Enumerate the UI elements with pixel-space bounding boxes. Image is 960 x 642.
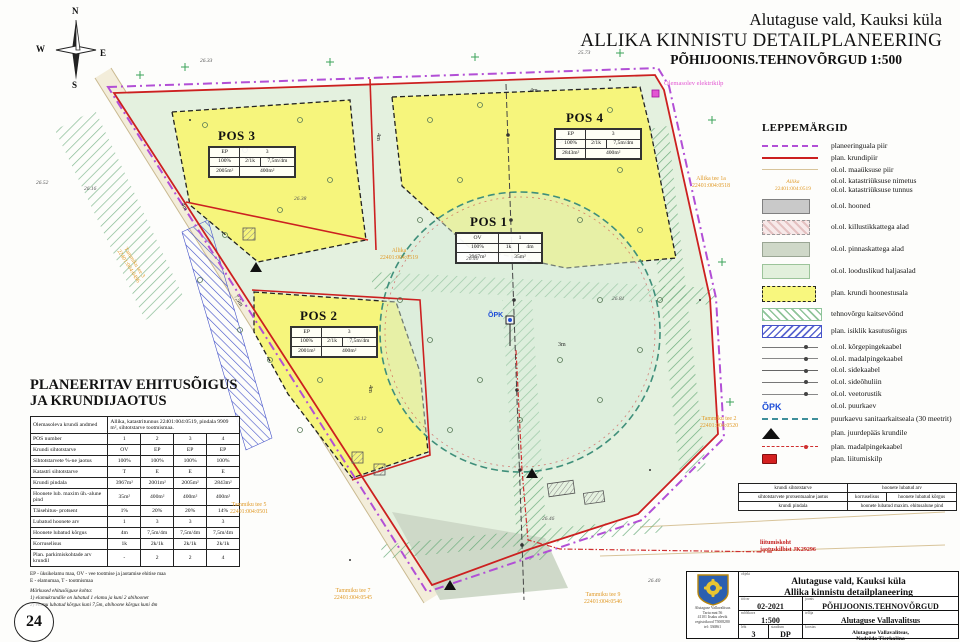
pos4-title: POS 4: [566, 110, 604, 126]
title-sheet-name: PÕHIJOONIS.TEHNOVÕRGUD 1:500: [580, 52, 902, 68]
table-row: Katastri sihtotstarveTEEE: [31, 466, 240, 477]
table-row: Lubatud hoonete arv1333: [31, 516, 240, 527]
org-info: Alutaguse VallavalitsusTartu mnt 56 4110…: [689, 606, 736, 630]
dimension-label: 4m: [375, 133, 381, 141]
table-row: Hoonete lubatud kõrgus4m7,5m/4m7,5m/4m7,…: [31, 527, 240, 538]
table-row: Krundi sihtotstarveOVEPEPEP: [31, 444, 240, 455]
legend-item: ol.ol. pinnaskattega alad: [762, 242, 958, 257]
compass-w: W: [36, 44, 45, 54]
well-symbol: ÕPK: [762, 402, 782, 412]
land-unit-boundary-swatch: [762, 169, 818, 170]
pos1-title: POS 1: [470, 214, 508, 230]
pos3-title: POS 3: [218, 128, 256, 144]
lv-cable-swatch: [762, 358, 818, 359]
legend-item: ol.ol. kõrgepingekaabel: [762, 343, 958, 352]
table-row: Plan. parkimiskohtade arv krundil-224: [31, 549, 240, 566]
cadastral-label-allika-tee: Allika tee 1a22401:004:0518: [692, 176, 730, 189]
legend-item: Allika22401:004:0519 ol.ol. katastriüksu…: [762, 177, 958, 194]
sheet-junction-number: 24: [14, 602, 54, 642]
drawing-name-cell: joonis PÕHIJOONIS.TEHNOVÕRGUD: [802, 596, 958, 610]
legend-item: plan. juurdepääs krundile: [762, 428, 958, 439]
spot-elevation: 26.40: [466, 256, 478, 262]
compass-n: N: [72, 6, 79, 16]
building-rights-title: PLANEERITAV EHITUSÕIGUSJA KRUNDIJAOTUS: [30, 378, 240, 410]
drawing-title: Alutaguse vald, Kauksi küla ALLIKA KINNI…: [580, 10, 942, 68]
spot-elevation: 26.52: [36, 180, 48, 186]
legend-item: ol.ol. sideõhuliin: [762, 378, 958, 387]
legend-item: ol.ol. killustikkattega alad: [762, 220, 958, 235]
building-area-swatch: [762, 286, 816, 302]
legend-item: ol.ol. madalpingekaabel: [762, 355, 958, 364]
cadastral-sample-text: Allika22401:004:0519: [762, 179, 824, 192]
legend-item: plan. krundipiir: [762, 154, 958, 163]
legend-item: plan. madalpingekaabel: [762, 443, 958, 452]
pos2-info-box: EP3 100%2/1k7,5m/4m 2001m²400m²: [290, 326, 378, 358]
pos-box-key-table: krundi sihtotstarvehoonete lubatud arv s…: [738, 483, 957, 511]
legend-title: LEPPEMÄRGID: [762, 122, 958, 134]
compass-e: E: [100, 48, 106, 58]
hv-cable-swatch: [762, 347, 818, 348]
spot-elevation: 26.38: [294, 196, 306, 202]
electric-cabinet-label: Olemasolev elektrikilp: [664, 80, 723, 87]
legend-item: ol.ol. maaüksuse piir: [762, 166, 958, 175]
table-row: Korruselisus1k2k/1k2k/1k2k/1k: [31, 538, 240, 549]
personal-use-swatch: [762, 325, 822, 338]
existing-buildings-swatch: [762, 199, 810, 214]
spot-elevation: 26.40: [648, 578, 660, 584]
overhead-line-swatch: [762, 382, 818, 383]
spot-elevation: 26.33: [200, 58, 212, 64]
spot-elevation: 25.73: [578, 50, 590, 56]
gravel-areas-swatch: [762, 220, 810, 235]
green-areas-swatch: [762, 264, 810, 279]
legend-item: puurkaevu sanitaarkaitseala (30 meetrit): [762, 415, 958, 424]
stage-cell: staadium DP: [768, 624, 802, 638]
legend-item: plan. isiklik kasutusõigus: [762, 325, 958, 338]
legend-item: ol.ol. veetorustik: [762, 390, 958, 399]
planned-lv-cable-swatch: [762, 446, 818, 447]
cadastral-label-t9: Tammiku tee 922401:004:0546: [584, 592, 622, 605]
title-block-org-cell: Alutaguse VallavalitsusTartu mnt 56 4110…: [687, 572, 738, 638]
table-row: Hoonete lub. maxim üh.-alune pind35m²400…: [31, 488, 240, 505]
dimension-label: 3m: [558, 342, 566, 348]
connection-point-label: liitumiskohtjaotuskilbist JK29296: [760, 540, 816, 554]
spot-elevation: 26.46: [542, 516, 554, 522]
author-cell: koostas Alutaguse Vallavalitsus,Nadežda …: [802, 624, 958, 638]
coat-of-arms-icon: [696, 574, 730, 606]
table-row: Täisehitus- protsent1%20%20%14%: [31, 505, 240, 516]
legend-item: plan. liitumiskilp: [762, 454, 958, 464]
title-locality: Alutaguse vald, Kauksi küla: [580, 10, 942, 30]
legend-item: ol.ol. sidekaabel: [762, 366, 958, 375]
spot-elevation: 26.16: [84, 186, 96, 192]
planning-boundary-swatch: [762, 145, 818, 147]
legend-item: tehnovõrgu kaitsevöönd: [762, 308, 958, 321]
project-name-cell: objekt Alutaguse vald, Kauksi küla Allik…: [738, 572, 958, 596]
spot-elevation: 26.12: [354, 416, 366, 422]
dimension-label: 4m: [530, 88, 538, 94]
legend-item: planeeringuala piir: [762, 142, 958, 151]
spot-elevation: 26.81: [612, 296, 624, 302]
comms-cable-swatch: [762, 370, 818, 371]
client-cell: tellija Alutaguse Vallavalitsus: [802, 610, 958, 624]
plot-boundary-swatch: [762, 157, 818, 159]
cadastral-label-t5: Tammiku tee 522401:004:0501: [230, 502, 268, 515]
table-row: Sihtotstarvete %-ne jaotus100%100%100%10…: [31, 455, 240, 466]
sheet-cell: leht 3: [738, 624, 768, 638]
soil-areas-swatch: [762, 242, 810, 257]
cadastral-label-t7: Tammiku tee 722401:004:0545: [334, 588, 372, 601]
access-triangle-icon: [762, 428, 780, 439]
work-number-cell: töö nr 02-2021: [738, 596, 802, 610]
pos3-info-box: EP3 100%2/1k7,5m/4m 2005m²400m²: [208, 146, 296, 178]
utility-protection-swatch: [762, 308, 822, 321]
pos4-info-box: EP3 100%2/1k7,5m/4m 2843m²400m²: [554, 128, 642, 160]
legend: LEPPEMÄRGID planeeringuala piir plan. kr…: [762, 122, 958, 468]
connection-cabinet-icon: [762, 454, 777, 464]
dimension-label: 4m: [367, 385, 373, 393]
building-rights-table: PLANEERITAV EHITUSÕIGUSJA KRUNDIJAOTUS O…: [30, 378, 240, 609]
title-project: ALLIKA KINNISTU DETAILPLANEERING: [580, 30, 942, 52]
table-row: Krundi pindala3967m²2001m²2005m²2843m²: [31, 477, 240, 488]
table-footnotes: EP - üksikelamu maa, OV - vee tootmise j…: [30, 571, 240, 609]
north-arrow: N W E S: [48, 8, 104, 92]
title-block: Alutaguse VallavalitsusTartu mnt 56 4110…: [686, 571, 959, 639]
sanitary-zone-swatch: [762, 418, 818, 420]
legend-item: plan. krundi hoonestusala: [762, 286, 958, 302]
cadastral-label-t2: Tammiku tee 222401:004:0520: [700, 416, 738, 429]
table-row: POS number1234: [31, 433, 240, 444]
legend-item: ol.ol. hooned: [762, 199, 958, 214]
scale-cell: mõõtkava 1:500: [738, 610, 802, 624]
water-pipe-swatch: [762, 394, 818, 395]
cadastral-label-allika: Allika22401:004:0519: [380, 248, 418, 261]
pos2-title: POS 2: [300, 308, 338, 324]
compass-s: S: [72, 80, 77, 90]
legend-item: ÕPK ol.ol. puurkaev: [762, 402, 958, 412]
well-label: ÕPK: [488, 312, 503, 319]
legend-item: ol.ol. looduslikud haljasalad: [762, 264, 958, 279]
table-row: Olemasoleva krundi andmed Allika, katast…: [31, 416, 240, 433]
